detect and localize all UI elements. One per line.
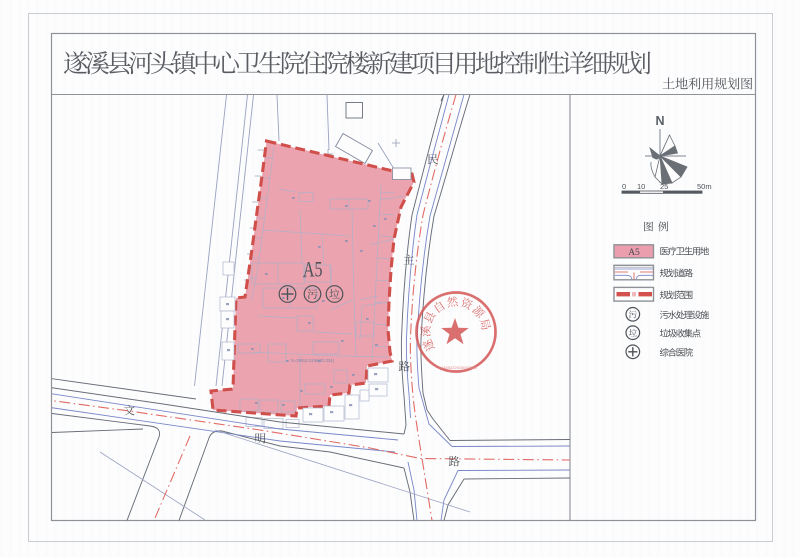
svg-text:10: 10 (637, 182, 645, 191)
svg-text:A5: A5 (303, 257, 323, 282)
svg-text:0: 0 (622, 182, 626, 191)
svg-text:4409222015000866: 4409222015000866 (441, 365, 477, 370)
svg-text:N: N (655, 114, 664, 128)
svg-text:S=29552.5166(02.334): S=29552.5166(02.334) (291, 358, 335, 363)
svg-text:A5: A5 (628, 248, 640, 258)
svg-text:25: 25 (660, 182, 668, 191)
svg-text:50m: 50m (697, 182, 712, 191)
